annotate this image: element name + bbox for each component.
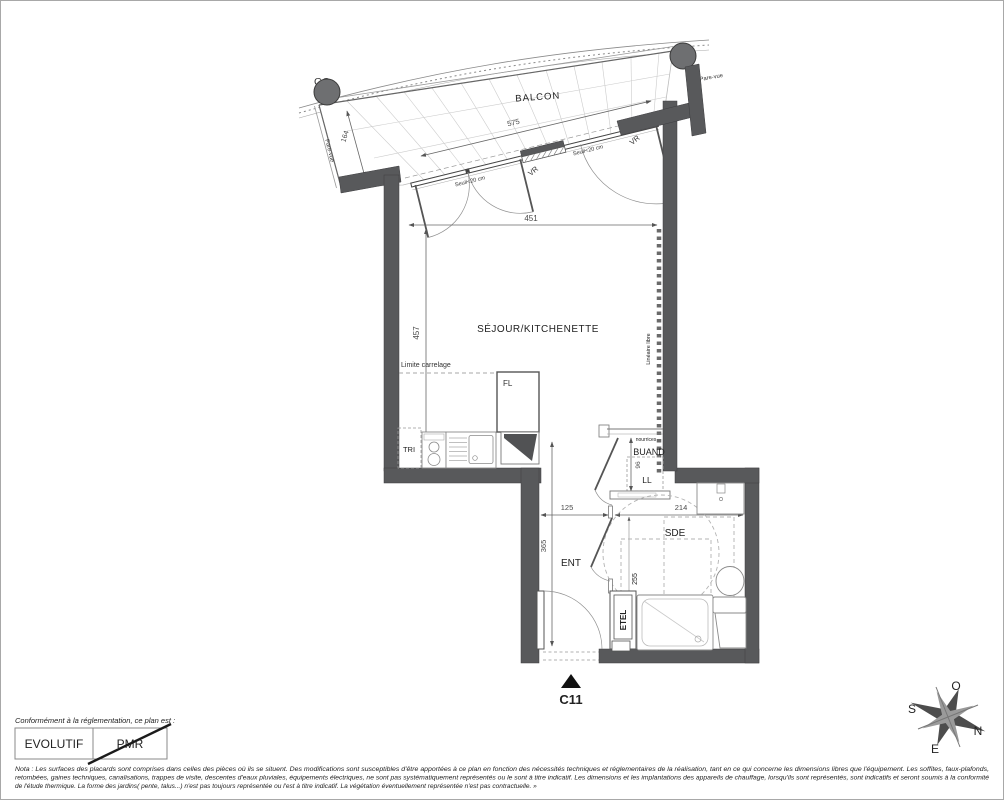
unit-marker: C11	[559, 674, 582, 707]
vr-right-label: VR	[628, 133, 642, 147]
balcony-post-right	[670, 43, 696, 69]
pmr-clearance-rect	[621, 539, 711, 599]
sink-unit	[446, 432, 496, 468]
etel-label: ETEL	[619, 610, 628, 631]
etel-base-box	[612, 641, 630, 651]
shower-depth-dim: 255	[632, 573, 639, 585]
ll-label: LL	[642, 475, 652, 485]
buand-south-wall	[610, 491, 670, 499]
floor-plan-sheet: GC BALCON 575	[0, 0, 1004, 800]
buand-jamb	[599, 425, 609, 437]
wc-base	[715, 613, 746, 648]
cooktop	[422, 432, 446, 468]
stamp-caption: Conformément à la réglementation, ce pla…	[15, 716, 175, 725]
entrance-width-dim: 125	[561, 503, 574, 512]
regulation-stamp: Conformément à la réglementation, ce pla…	[15, 716, 175, 764]
wc-cistern	[713, 597, 746, 613]
wall-west	[384, 175, 399, 471]
compass-north-label: N	[974, 724, 983, 738]
living-depth-dim: 457	[412, 326, 421, 340]
legal-line-1: Nota : Les surfaces des placards sont co…	[15, 766, 989, 773]
entry-door-swing	[544, 591, 602, 649]
entrance-depth-dim: 365	[539, 540, 548, 553]
buand-door-swing	[595, 490, 612, 505]
entry-door-leaf	[537, 591, 544, 649]
buand-door-leaf	[595, 438, 618, 490]
laundry-room-label: BUAND	[633, 447, 665, 457]
wall-east	[745, 468, 759, 663]
nourrices-label: nourrices	[636, 437, 657, 443]
shower-room-label: SDE	[665, 528, 686, 539]
wall-ent-west	[521, 468, 539, 663]
legal-line-2: retombées, gaines techniques, canalisati…	[15, 775, 989, 782]
wall-right-pier	[685, 64, 706, 136]
living-room-label: SÉJOUR/KITCHENETTE	[477, 322, 599, 335]
floor-plan-svg: GC BALCON 575	[1, 1, 1004, 800]
compass-south-label: S	[908, 702, 916, 716]
living-width-dim: 451	[524, 214, 538, 223]
unit-label: C11	[559, 692, 582, 707]
legal-line-3: de l'étude thermique. La forme des jardi…	[15, 783, 537, 790]
sde-door-swing	[591, 567, 610, 581]
stamp-strikethrough	[88, 724, 171, 764]
wall-sde-north	[675, 468, 759, 483]
shower-width-dim: 214	[675, 503, 688, 512]
stamp-evolutif: EVOLUTIF	[25, 737, 84, 751]
entrance-room-label: ENT	[561, 558, 581, 569]
balcony-post-left	[314, 79, 340, 105]
tri-label: TRI	[403, 445, 415, 454]
compass-rose: O S N E	[900, 675, 996, 760]
sde-door-leaf	[591, 518, 612, 567]
fl-label: FL	[503, 379, 513, 388]
laundry-depth-dim: 96	[635, 461, 642, 469]
legal-note: Nota : Les surfaces des placards sont co…	[15, 766, 989, 790]
entry-arrow-icon	[561, 674, 581, 688]
washbasin	[697, 483, 744, 514]
partition-stub-top	[609, 506, 613, 518]
wall-sejour-east	[663, 101, 677, 471]
compass-east-label: E	[931, 742, 939, 756]
seuil-left-label: Seuil<20 cm	[454, 175, 486, 188]
limite-carrelage-label: Limite carrelage	[401, 362, 451, 369]
wall-kitchen-south	[384, 468, 541, 483]
pare-vue-right-label: Pare-vue	[699, 73, 723, 83]
kitchenette: TRI FL	[398, 372, 539, 468]
lineaire-libre-label: Linéaire libre	[646, 333, 652, 365]
vr-left-label: VR	[526, 164, 540, 178]
compass-west-label: O	[951, 679, 960, 693]
wc-bowl	[716, 567, 744, 596]
